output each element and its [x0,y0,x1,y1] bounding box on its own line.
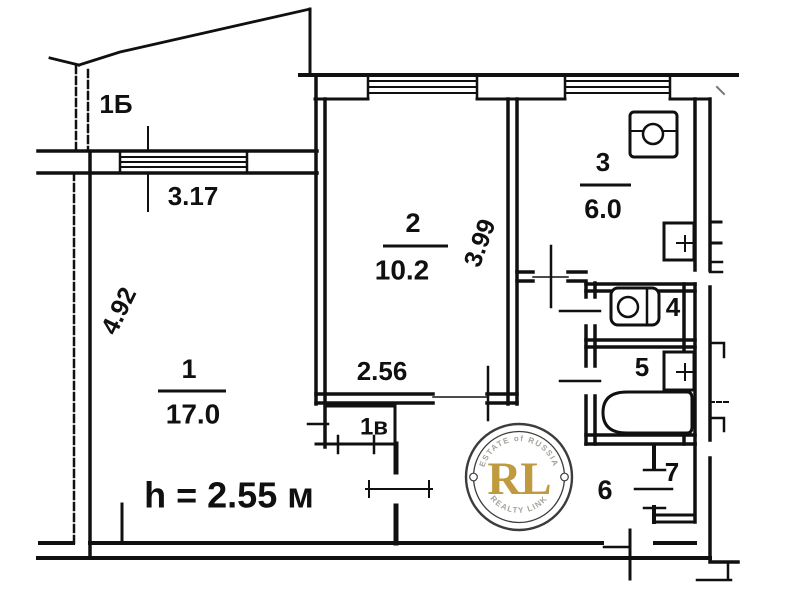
dimension-labels: 3.17 4.92 3.99 2.56 [96,181,502,386]
toilet-icon [611,288,659,325]
room-1-area: 17.0 [166,399,221,430]
balcony-label: 1Б [99,89,132,119]
room-6-number: 6 [597,475,612,505]
floor-plan-page: 1Б 1 17.0 2 10.2 3 6.0 4 5 6 7 1в h = 2.… [0,0,800,600]
kitchen-sink-icon [664,223,694,260]
room-1-number: 1 [181,354,196,384]
room-5-number: 5 [635,352,649,382]
room-3-area: 6.0 [584,194,622,224]
dim-room2-width: 2.56 [357,356,408,386]
watermark-stamp: ESTATE of RUSSIA REALTY LINK RL [466,424,572,530]
dim-balcony-window: 3.17 [168,181,219,211]
bathtub-icon [603,392,692,433]
room-7-number: 7 [665,457,679,487]
watermark-left-dot [470,473,478,481]
watermark-monogram: RL [487,453,550,505]
room-4-number: 4 [666,292,681,322]
room-3-number: 3 [596,147,610,177]
bathroom-sink-icon [664,352,694,390]
stove-icon [630,112,677,157]
room-2-area: 10.2 [375,255,430,286]
closet-label: 1в [360,414,388,441]
watermark-right-dot [561,473,569,481]
room-labels: 1Б 1 17.0 2 10.2 3 6.0 4 5 6 7 1в h = 2.… [99,89,680,516]
dim-room1-depth: 4.92 [96,283,143,339]
ceiling-height-note: h = 2.55 м [144,475,314,516]
floor-plan-drawing: 1Б 1 17.0 2 10.2 3 6.0 4 5 6 7 1в h = 2.… [0,0,800,600]
room-2-number: 2 [405,208,420,238]
dim-room2-depth: 3.99 [459,215,502,270]
windows [120,75,670,173]
